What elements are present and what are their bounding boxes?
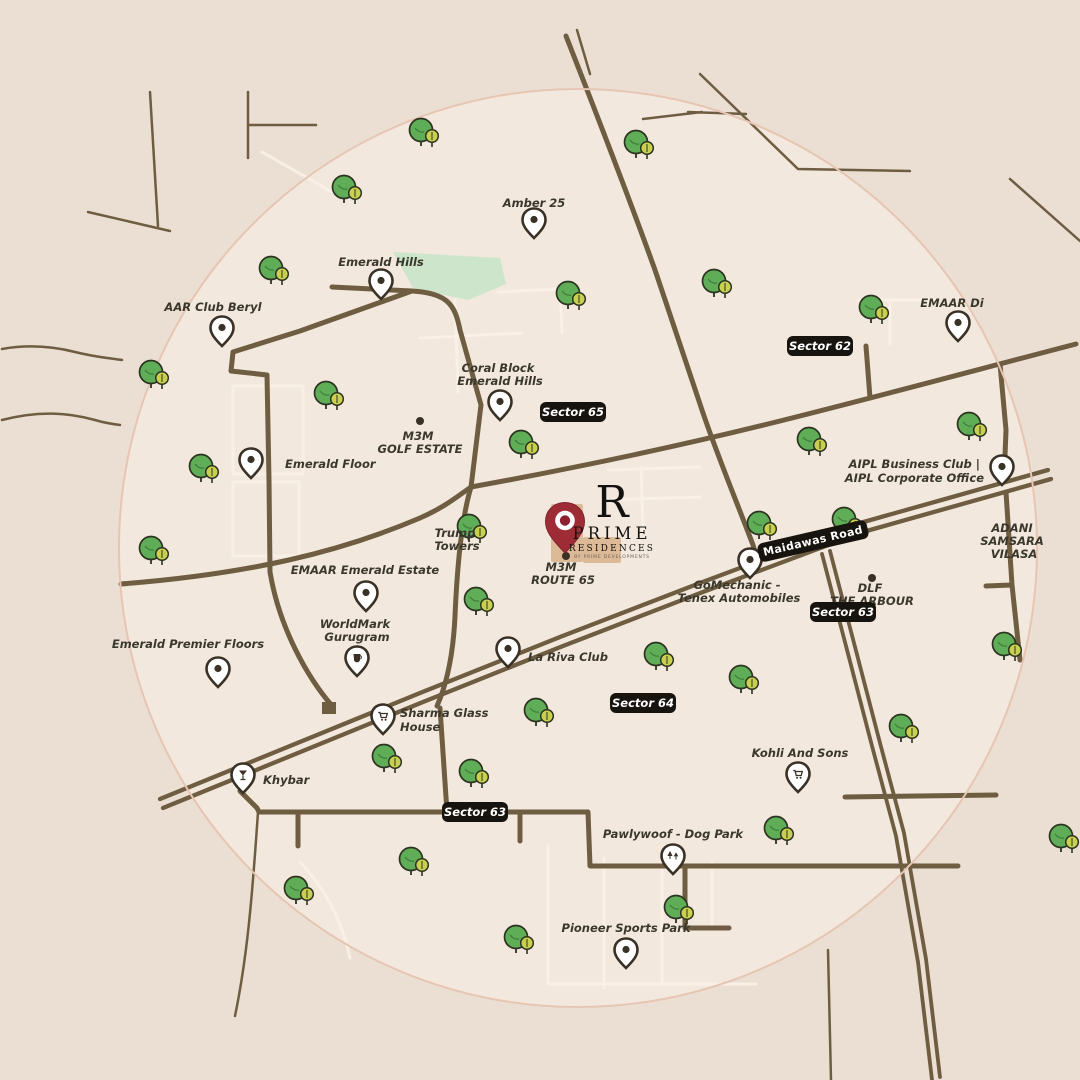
sector-badge-64: Sector 64	[610, 693, 676, 713]
svg-text:Sector 64: Sector 64	[612, 696, 674, 710]
sector-badge-63-right: Sector 63	[810, 602, 876, 622]
place-label: Pioneer Sports Park	[562, 921, 692, 935]
place-label: WorldMark Gurugram	[320, 617, 394, 644]
sector-badge-63-bottom: Sector 63	[442, 802, 508, 822]
sector-badge-62: Sector 62	[787, 336, 853, 356]
svg-text:Sector 63: Sector 63	[444, 805, 506, 819]
svg-text:Sector 63: Sector 63	[812, 605, 874, 619]
place-label: Emerald Hills	[338, 255, 424, 269]
place-label: EMAAR Di	[920, 296, 985, 310]
road-junction-block	[322, 702, 336, 714]
place-label: Khybar	[263, 773, 311, 787]
logo-title: PRIME	[573, 524, 652, 543]
sector-badge-65: Sector 65	[540, 402, 606, 422]
place-label: AAR Club Beryl	[163, 300, 262, 314]
location-map-page: Amber 25 Emerald Hills AAR Club Beryl Co…	[0, 0, 1080, 1080]
place-label: Emerald Premier Floors	[112, 637, 264, 651]
svg-text:Sector 65: Sector 65	[542, 405, 604, 419]
place-trump-towers: Trump Towers	[434, 526, 479, 553]
svg-text:Sector 62: Sector 62	[789, 339, 851, 353]
place-label: Coral Block Emerald Hills	[457, 361, 543, 388]
place-label: Trump Towers	[434, 526, 479, 553]
place-label: AIPL Business Club | AIPL Corporate Offi…	[844, 457, 984, 485]
logo-tagline: BY PRIME DEVELOPMENTS	[574, 554, 650, 560]
place-label: La Riva Club	[528, 650, 608, 664]
place-label: EMAAR Emerald Estate	[291, 563, 440, 577]
place-label: Pawlywoof - Dog Park	[603, 827, 745, 841]
place-label: Emerald Floor	[285, 457, 377, 471]
tree-icon	[1050, 825, 1079, 854]
place-label: GoMechanic - Tenex Automobiles	[678, 578, 801, 605]
location-map: Amber 25 Emerald Hills AAR Club Beryl Co…	[0, 0, 1080, 1080]
place-label: Amber 25	[502, 196, 566, 210]
place-label: Kohli And Sons	[752, 746, 849, 760]
logo-subtitle: RESIDENCES	[569, 544, 655, 554]
dot-marker-icon	[416, 417, 424, 425]
logo-mark: R	[595, 477, 630, 528]
